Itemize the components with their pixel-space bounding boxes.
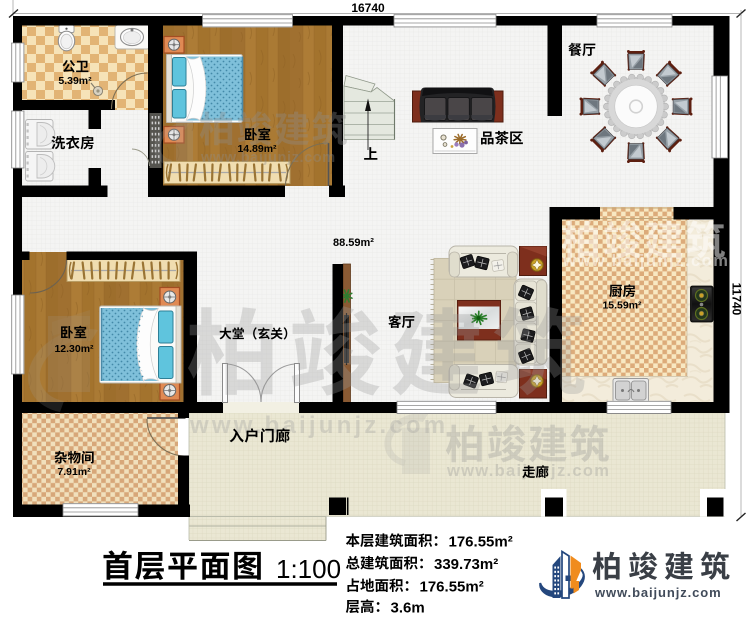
- svg-text:www.baijunjz.com: www.baijunjz.com: [594, 585, 722, 600]
- svg-text:176.55m²: 176.55m²: [449, 534, 513, 551]
- svg-text:339.73m²: 339.73m²: [434, 556, 498, 573]
- svg-text:7.91m²: 7.91m²: [57, 466, 91, 478]
- svg-text:12.30m²: 12.30m²: [54, 343, 94, 355]
- svg-text:11740: 11740: [730, 283, 744, 316]
- svg-text:3.6m: 3.6m: [391, 600, 425, 617]
- svg-text:16740: 16740: [351, 1, 385, 15]
- svg-text:www.baijunjz.com: www.baijunjz.com: [562, 252, 729, 270]
- svg-text:88.59m²: 88.59m²: [333, 237, 374, 249]
- svg-text:15.59m²: 15.59m²: [602, 300, 642, 312]
- svg-text:1:100: 1:100: [276, 554, 341, 584]
- svg-text:5.39m²: 5.39m²: [58, 75, 92, 87]
- svg-text:176.55m²: 176.55m²: [420, 579, 484, 596]
- svg-text:14.89m²: 14.89m²: [237, 143, 277, 155]
